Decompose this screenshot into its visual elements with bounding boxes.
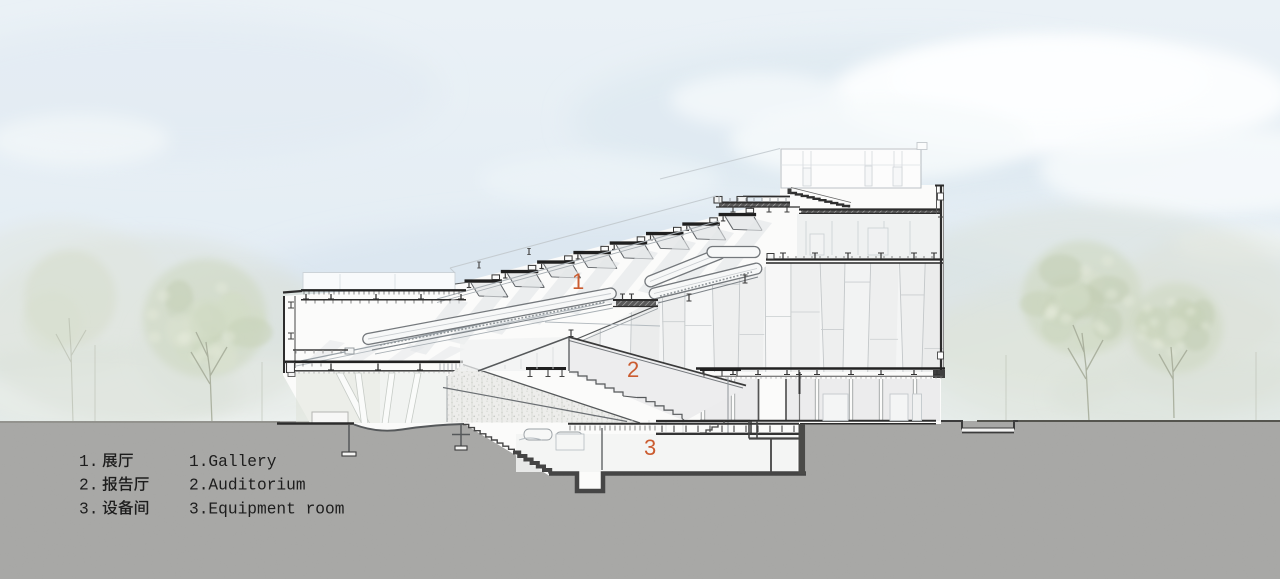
svg-text:3: 3 xyxy=(644,435,656,460)
svg-text:3.: 3. xyxy=(79,500,98,518)
svg-text:2.: 2. xyxy=(79,477,98,495)
svg-text:3.Equipment room: 3.Equipment room xyxy=(189,500,344,518)
svg-text:2: 2 xyxy=(627,357,639,382)
svg-text:2.Auditorium: 2.Auditorium xyxy=(189,477,306,495)
svg-text:1.: 1. xyxy=(79,453,98,471)
svg-text:1.Gallery: 1.Gallery xyxy=(189,453,277,471)
svg-text:1: 1 xyxy=(572,269,584,294)
